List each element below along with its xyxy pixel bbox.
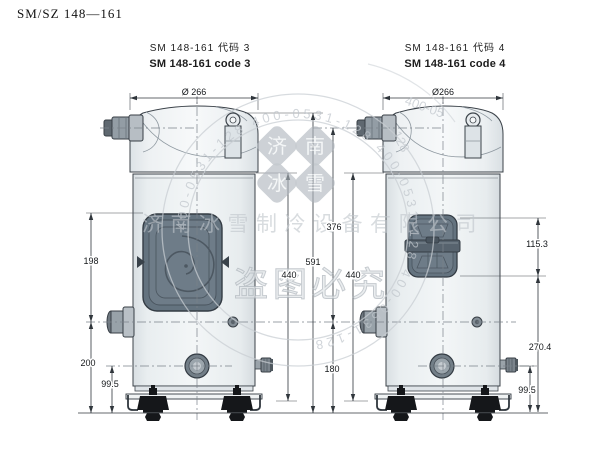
seal-char-1: 济: [267, 135, 287, 158]
left-compressor: [104, 106, 273, 421]
left-view-title-en: SM 148-161 code 3: [105, 58, 295, 70]
lifting-lug: [465, 113, 481, 158]
seal-char-4: 雪: [305, 173, 325, 195]
right-view-title-en: SM 148-161 code 4: [360, 58, 550, 70]
dim-label-diameter-right: Ø266: [432, 87, 454, 97]
dim-label-591: 591: [305, 257, 320, 267]
dim-label-198: 198: [83, 256, 98, 266]
right-view-title-cn: SM 148-161 代码 4: [360, 39, 550, 54]
page-title: SM/SZ 148—161: [17, 6, 123, 22]
dim-label-440-left: 440: [281, 270, 296, 280]
dim-label-99-right: 99.5: [518, 385, 536, 395]
dim-label-115: 115.3: [526, 239, 548, 249]
right-service-valve: [500, 358, 518, 372]
left-view-title-cn: SM 148-161 代码 3: [105, 39, 295, 54]
dim-label-180: 180: [324, 364, 339, 374]
seal-char-2: 南: [305, 135, 325, 158]
dim-label-200: 200: [80, 358, 95, 368]
dim-label-376: 376: [326, 222, 341, 232]
watermark-seal: 济 南 冰 雪: [254, 123, 337, 205]
seal-char-3: 冰: [267, 172, 287, 195]
watermark-company: 济南冰雪制冷设备有限公司: [142, 213, 484, 236]
dim-label-99-left: 99.5: [101, 379, 119, 389]
dim-label-270: 270.4: [529, 342, 552, 352]
catalog-page: 400-0531-128 400-0531-128 400-0531-128 4…: [0, 0, 600, 450]
watermark-warning: 盗图必究: [234, 266, 390, 304]
dim-label-diameter-left: Ø 266: [182, 87, 207, 97]
dim-label-440-right: 440: [345, 270, 360, 280]
